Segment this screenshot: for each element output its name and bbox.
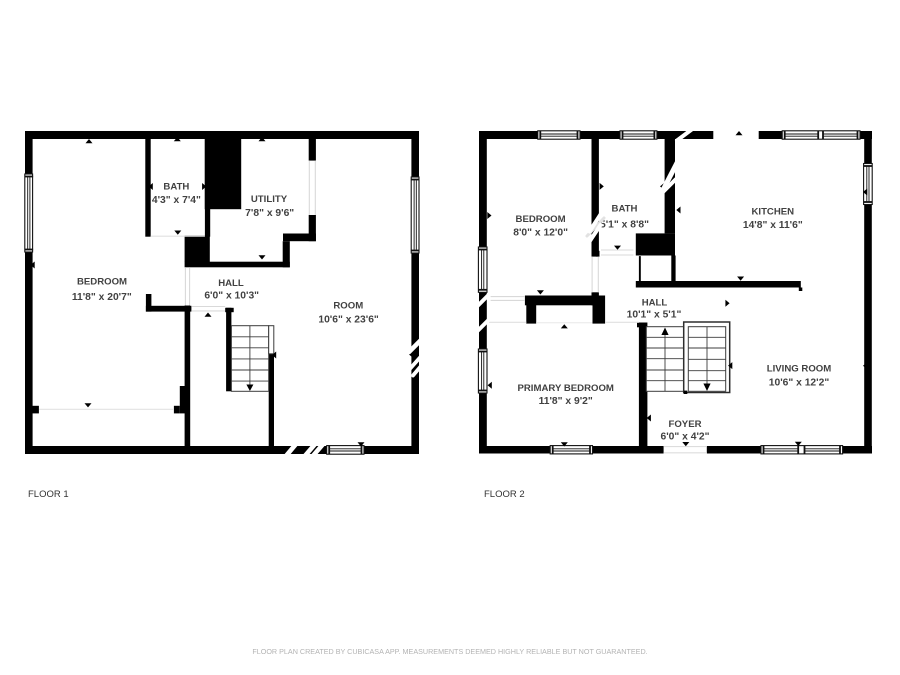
svg-text:BATH: BATH [612,204,638,215]
svg-text:LIVING ROOM: LIVING ROOM [767,364,832,375]
svg-text:BEDROOM: BEDROOM [516,214,566,225]
svg-text:BATH: BATH [163,182,189,193]
svg-text:11'8" x 9'2": 11'8" x 9'2" [539,396,593,407]
svg-text:PRIMARY BEDROOM: PRIMARY BEDROOM [517,383,613,394]
svg-text:FLOOR 1: FLOOR 1 [28,489,69,500]
svg-text:BEDROOM: BEDROOM [77,277,127,288]
svg-text:ROOM: ROOM [333,301,363,312]
svg-text:11'8" x 20'7": 11'8" x 20'7" [72,292,132,303]
svg-text:8'0" x 12'0": 8'0" x 12'0" [513,228,568,239]
svg-text:10'6" x 12'2": 10'6" x 12'2" [769,378,830,389]
svg-text:10'1" x 5'1": 10'1" x 5'1" [627,310,682,321]
svg-text:KITCHEN: KITCHEN [751,206,794,217]
svg-text:FLOOR 2: FLOOR 2 [484,489,525,500]
svg-text:10'6" x 23'6": 10'6" x 23'6" [318,315,379,326]
svg-text:6'0" x 4'2": 6'0" x 4'2" [660,432,709,443]
svg-text:7'8" x 9'6": 7'8" x 9'6" [245,208,294,219]
svg-text:FOYER: FOYER [668,419,701,430]
svg-text:FLOOR PLAN CREATED BY CUBICASA: FLOOR PLAN CREATED BY CUBICASA APP. MEAS… [252,647,647,656]
svg-text:14'8" x 11'6": 14'8" x 11'6" [743,220,803,231]
svg-text:4'3" x 7'4": 4'3" x 7'4" [152,195,201,206]
svg-text:6'0" x 10'3": 6'0" x 10'3" [204,291,259,302]
svg-text:5'1" x 8'8": 5'1" x 8'8" [600,220,649,231]
svg-text:UTILITY: UTILITY [251,194,288,205]
svg-text:HALL: HALL [642,297,668,308]
svg-text:HALL: HALL [218,278,244,289]
